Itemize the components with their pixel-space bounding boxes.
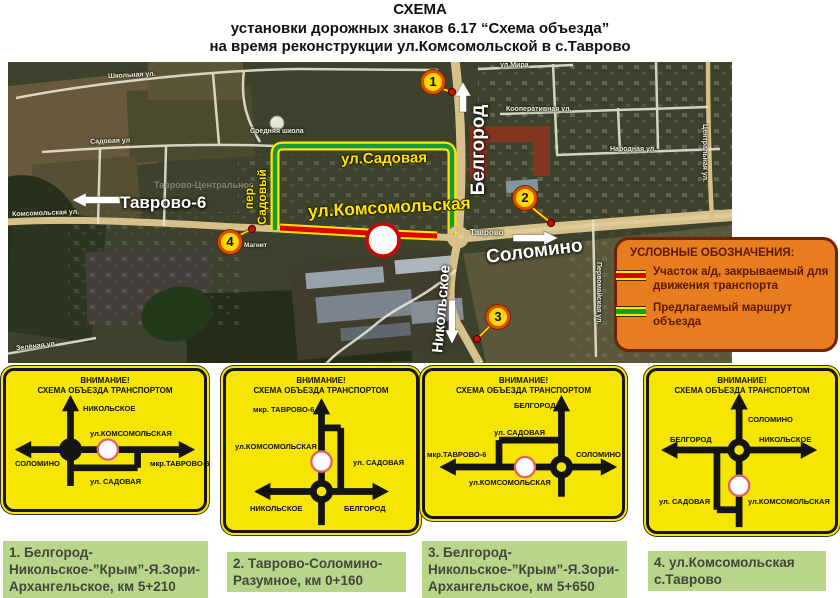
sign1-label-tavrovo6: мкр.ТАВРОВО-6 — [150, 459, 209, 468]
caption-3: 3. Белгород-Никольское-”Крым”-Я.Зори-Арх… — [422, 541, 627, 598]
legend-box: УСЛОВНЫЕ ОБОЗНАЧЕНИЯ: Участок а/д, закры… — [614, 237, 838, 352]
street-label-narodnaya: Народная ул. — [610, 146, 656, 153]
sign4-label-sadovaya: ул. САДОВАЯ — [659, 497, 710, 506]
sign4-label-komsomolskaya: ул.КОМСОМОЛЬСКАЯ — [748, 497, 830, 506]
title-line1: СХЕМА — [0, 1, 840, 20]
legend-item-closed-label: Участок а/д, закрываемый для движения тр… — [653, 266, 829, 293]
sign4-label-belgorod: БЕЛГОРОД — [670, 435, 712, 444]
marker-3-number: 3 — [494, 309, 501, 324]
sign1-label-komsomolskaya: ул.КОМСОМОЛЬСКАЯ — [90, 429, 172, 438]
sign2-label-belgorod: БЕЛГОРОД — [344, 504, 386, 513]
closed-section-swatch — [616, 270, 646, 281]
caption-4: 4. ул.Комсомольская с.Таврово — [648, 551, 826, 591]
legend-item-detour: Предлагаемый маршрут объезда — [630, 302, 829, 329]
scheme-title: СХЕМА установки дорожных знаков 6.17 “Сх… — [0, 1, 840, 57]
sign2-road-closed-symbol — [311, 451, 331, 471]
poi-label-tavrovo: Таврово — [470, 228, 504, 237]
road-closed-symbol — [366, 223, 401, 258]
street-label-centralnaya: Центральная ул. — [701, 124, 708, 182]
sign1-diagram — [6, 371, 204, 509]
sign3-road-closed-symbol — [515, 457, 535, 477]
sign1-road-closed-symbol — [98, 440, 118, 460]
dest-label-tavrovo6: Таврово-6 — [120, 193, 206, 213]
map-marker-1: 1 — [421, 70, 445, 94]
detour-sign-1: ВНИМАНИЕ! СХЕМА ОБЪЕЗДА ТРАНСПОРТОМ НИКО… — [3, 368, 207, 512]
route-label-sadovaya: ул.Садовая — [341, 149, 427, 167]
sign4-road-closed-symbol — [729, 476, 749, 496]
title-line2: установки дорожных знаков 6.17 “Схема об… — [0, 20, 840, 39]
sign3-label-sadovaya: ул. САДОВАЯ — [494, 428, 545, 437]
dest-label-belgorod: Белгород — [468, 95, 490, 205]
sign1-label-solomino: СОЛОМИНО — [15, 459, 60, 468]
route-label-sadoviy: Садовый — [256, 161, 269, 233]
map-marker-4: 4 — [218, 230, 242, 254]
sign2-label-komsomolskaya: ул.КОМСОМОЛЬСКАЯ — [235, 442, 317, 451]
detour-sign-4: ВНИМАНИЕ! СХЕМА ОБЪЕЗДА ТРАНСПОРТОМ СОЛО… — [646, 368, 838, 534]
street-label-sadovaya-ul: Садовая ул — [90, 137, 130, 145]
street-label-mira: ул.Мира — [500, 62, 529, 69]
marker-2-number: 2 — [521, 190, 528, 205]
detour-route-swatch — [616, 306, 646, 317]
area-label-tavrovo-centralnoe: Таврово-Центральное — [154, 180, 254, 190]
sign2-label-tavrovo6: мкр. ТАВРОВО-6 — [253, 405, 314, 414]
legend-item-closed: Участок а/д, закрываемый для движения тр… — [630, 266, 829, 293]
detour-sign-2: ВНИМАНИЕ! СХЕМА ОБЪЕЗДА ТРАНСПОРТОМ мкр.… — [223, 368, 419, 533]
sign2-label-nikolskoe: НИКОЛЬСКОЕ — [250, 504, 302, 513]
poi-label-school: Средняя школа — [250, 128, 304, 135]
map-marker-3: 3 — [486, 305, 510, 329]
map-marker-2: 2 — [513, 186, 537, 210]
poi-label-magnit: Магнит — [244, 242, 267, 249]
marker-1-number: 1 — [429, 74, 436, 89]
legend-item-detour-label: Предлагаемый маршрут объезда — [653, 302, 829, 329]
street-label-pervomayskaya: Первомайская ул. — [595, 262, 602, 324]
sign3-label-solomino: СОЛОМИНО — [576, 450, 621, 459]
sign4-label-nikolskoe: НИКОЛЬСКОЕ — [759, 435, 811, 444]
detour-sign-3: ВНИМАНИЕ! СХЕМА ОБЪЕЗДА ТРАНСПОРТОМ БЕЛГ… — [422, 368, 625, 519]
sign3-label-tavrovo6: мкр.ТАВРОВО-6 — [427, 450, 486, 459]
sign3-label-belgorod: БЕЛГОРОД — [514, 401, 556, 410]
sign3-diagram — [425, 371, 622, 516]
sign1-label-sadovaya: ул. САДОВАЯ — [90, 477, 141, 486]
route-label-per-sadoviy: пер. Садовый — [243, 161, 269, 233]
caption-1: 1. Белгород-Никольское-”Крым”-Я.Зори-Арх… — [3, 541, 208, 598]
sign4-label-solomino: СОЛОМИНО — [748, 415, 793, 424]
title-line3: на время реконструкции ул.Комсомольской … — [0, 38, 840, 57]
caption-2: 2. Таврово-Соломино-Разумное, км 0+160 — [227, 552, 406, 592]
sign2-label-sadovaya: ул. САДОВАЯ — [353, 458, 404, 467]
marker-4-number: 4 — [226, 234, 233, 249]
sign3-label-komsomolskaya: ул.КОМСОМОЛЬСКАЯ — [469, 478, 551, 487]
street-label-kooperativnaya: Кооперативная ул. — [506, 106, 572, 113]
sign4-diagram — [649, 371, 835, 531]
sign1-label-nikolskoe: НИКОЛЬСКОЕ — [83, 404, 135, 413]
legend-title: УСЛОВНЫЕ ОБОЗНАЧЕНИЯ: — [630, 247, 829, 259]
